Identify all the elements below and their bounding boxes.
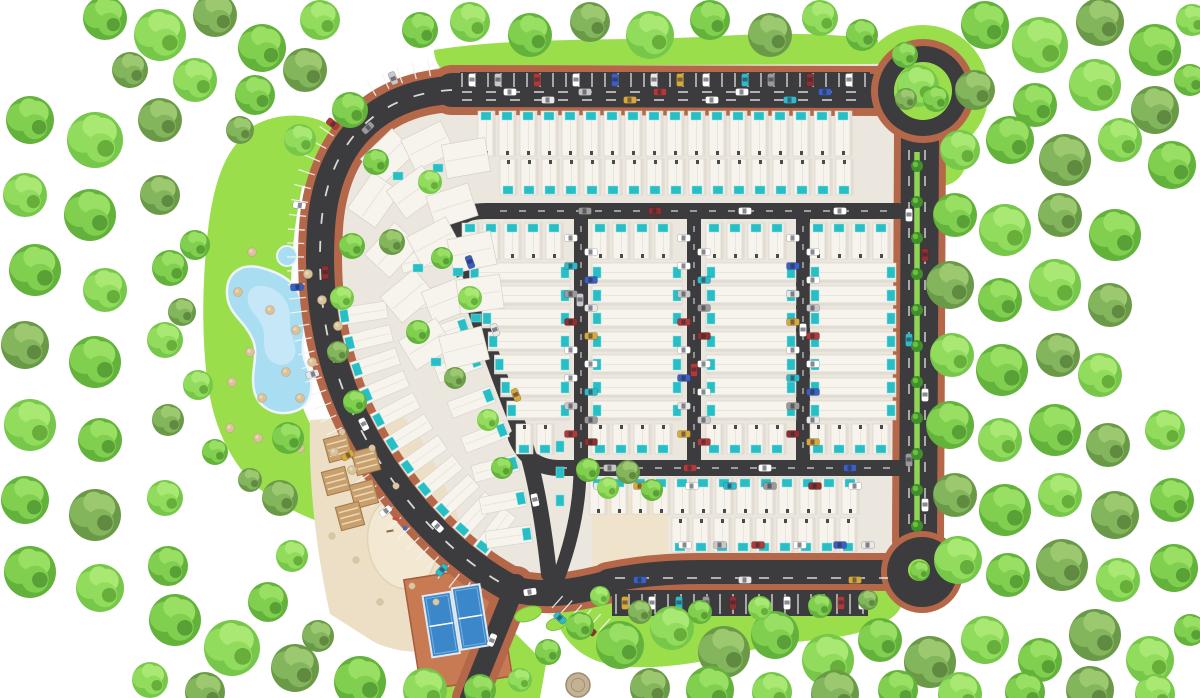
car	[759, 465, 772, 472]
car	[787, 319, 800, 326]
car	[698, 305, 711, 312]
tree	[895, 88, 917, 110]
car	[678, 375, 691, 382]
tree	[930, 333, 974, 377]
tree	[3, 173, 47, 217]
tree	[978, 418, 1022, 462]
car	[703, 74, 710, 87]
tree	[406, 320, 430, 344]
car	[784, 597, 791, 610]
tree	[1036, 539, 1088, 591]
car	[922, 249, 929, 262]
tree	[78, 418, 122, 462]
car	[565, 431, 578, 438]
tree	[576, 458, 600, 482]
car	[585, 417, 598, 424]
tree	[1148, 141, 1196, 189]
car	[794, 542, 807, 549]
tree	[1038, 473, 1082, 517]
car	[604, 465, 617, 472]
tree	[69, 489, 121, 541]
tree	[173, 58, 217, 102]
car	[807, 361, 820, 368]
tree	[112, 52, 148, 88]
car	[787, 403, 800, 410]
car	[585, 305, 598, 312]
car	[579, 89, 592, 96]
tree	[1029, 404, 1081, 456]
tree	[1069, 609, 1121, 661]
car	[787, 375, 800, 382]
tree	[1086, 423, 1130, 467]
tree	[271, 644, 319, 692]
car	[807, 305, 820, 312]
car	[585, 439, 598, 446]
car	[678, 291, 691, 298]
tree	[978, 278, 1022, 322]
tree	[1131, 86, 1179, 134]
car	[649, 208, 662, 215]
car	[634, 577, 647, 584]
car	[809, 483, 822, 490]
car	[752, 542, 765, 549]
tree	[4, 399, 56, 451]
tree	[444, 367, 466, 389]
car	[800, 324, 807, 337]
car	[787, 291, 800, 298]
tree	[933, 473, 977, 517]
car	[906, 209, 913, 222]
car	[624, 97, 637, 104]
tree	[1096, 558, 1140, 602]
car	[698, 277, 711, 284]
car	[322, 266, 329, 279]
car	[565, 263, 578, 270]
tree	[134, 9, 186, 61]
car	[724, 483, 737, 490]
tree	[140, 175, 180, 215]
car	[787, 263, 800, 270]
car	[706, 97, 719, 104]
car	[742, 74, 749, 87]
car	[698, 333, 711, 340]
car	[730, 597, 737, 610]
tree	[238, 24, 286, 72]
tree	[339, 233, 365, 259]
padel-courts	[422, 584, 489, 657]
car	[585, 389, 598, 396]
car	[678, 403, 691, 410]
car	[739, 208, 752, 215]
tree	[748, 596, 772, 620]
tree	[1145, 410, 1185, 450]
car	[698, 439, 711, 446]
site-plan	[0, 0, 1200, 698]
car	[807, 389, 820, 396]
car	[698, 389, 711, 396]
tree	[402, 12, 438, 48]
tree	[616, 460, 640, 484]
car	[290, 283, 303, 291]
tree	[183, 370, 213, 400]
car	[542, 97, 555, 104]
tree	[535, 639, 561, 665]
tree	[808, 594, 832, 618]
car	[684, 465, 697, 472]
tree	[979, 204, 1031, 256]
car	[686, 483, 699, 490]
tree	[858, 618, 902, 662]
car	[787, 235, 800, 242]
tree	[300, 0, 340, 40]
car	[862, 542, 875, 549]
car	[739, 577, 752, 584]
tree	[1036, 333, 1080, 377]
tree	[343, 390, 367, 414]
car	[523, 588, 537, 597]
tree	[138, 98, 182, 142]
tree	[979, 484, 1031, 536]
tree	[1078, 353, 1122, 397]
house-row	[500, 159, 853, 195]
tree	[933, 193, 977, 237]
tree	[508, 668, 532, 692]
tree	[332, 92, 368, 128]
tree	[626, 11, 674, 59]
car	[585, 249, 598, 256]
car	[819, 89, 832, 96]
car	[834, 542, 847, 549]
car	[679, 542, 692, 549]
car	[495, 74, 502, 87]
tree	[9, 244, 61, 296]
house-block	[810, 263, 896, 420]
tree	[226, 116, 254, 144]
tree	[148, 546, 188, 586]
car	[577, 294, 584, 307]
tree	[132, 662, 168, 698]
tree	[202, 439, 228, 465]
car	[565, 319, 578, 326]
car	[807, 74, 814, 87]
tree	[802, 0, 838, 36]
tree	[180, 230, 210, 260]
tree	[961, 616, 1009, 664]
tree	[379, 229, 405, 255]
tree	[986, 116, 1034, 164]
car	[736, 89, 749, 96]
tree	[147, 480, 183, 516]
car	[565, 235, 578, 242]
tree	[330, 286, 354, 310]
car	[678, 347, 691, 354]
tree	[1076, 0, 1124, 46]
tree	[235, 75, 275, 115]
tree	[262, 480, 298, 516]
tree	[284, 124, 316, 156]
car	[807, 439, 820, 446]
tree	[1088, 283, 1132, 327]
house-block	[592, 263, 682, 420]
car	[922, 389, 929, 402]
car	[787, 347, 800, 354]
car	[807, 249, 820, 256]
tree	[248, 582, 288, 622]
car	[849, 483, 862, 490]
tree	[69, 336, 121, 388]
tree	[238, 468, 262, 492]
car	[565, 347, 578, 354]
tree	[67, 112, 123, 168]
car	[469, 74, 476, 87]
tree	[1098, 118, 1142, 162]
tree	[204, 620, 260, 676]
car	[585, 277, 598, 284]
tree	[64, 189, 116, 241]
tree	[1, 321, 49, 369]
car	[565, 375, 578, 382]
tree	[477, 409, 499, 431]
tree	[641, 479, 663, 501]
tree	[76, 564, 124, 612]
car	[698, 417, 711, 424]
car	[579, 208, 592, 215]
tree	[892, 42, 918, 68]
car	[834, 208, 847, 215]
car	[573, 74, 580, 87]
tree	[590, 586, 610, 606]
tree	[597, 477, 619, 499]
tree	[272, 422, 304, 454]
car	[651, 74, 658, 87]
tree	[1038, 193, 1082, 237]
car	[807, 417, 820, 424]
car	[714, 542, 727, 549]
tree	[302, 620, 334, 652]
car	[838, 597, 845, 610]
car	[764, 483, 777, 490]
tree	[570, 2, 610, 42]
tree	[450, 2, 490, 42]
tree	[858, 590, 878, 610]
site-plan-svg	[0, 0, 1200, 698]
car	[846, 74, 853, 87]
car	[698, 249, 711, 256]
tree	[934, 536, 982, 584]
car	[612, 74, 619, 87]
tree	[1089, 209, 1141, 261]
tree	[1150, 544, 1198, 592]
car	[768, 74, 775, 87]
tree	[690, 0, 730, 40]
car	[787, 431, 800, 438]
tree	[458, 286, 482, 310]
car	[807, 333, 820, 340]
tree	[596, 621, 644, 669]
house-block	[706, 263, 796, 420]
tree	[491, 457, 513, 479]
car	[844, 465, 857, 472]
tree	[431, 247, 453, 269]
tree	[923, 86, 949, 112]
car	[698, 361, 711, 368]
car	[677, 74, 684, 87]
tree	[688, 600, 712, 624]
tree	[961, 1, 1009, 49]
car	[585, 361, 598, 368]
tree	[650, 606, 694, 650]
tree	[508, 13, 552, 57]
car	[678, 235, 691, 242]
tree	[926, 261, 974, 309]
tree	[940, 130, 980, 170]
car	[585, 333, 598, 340]
tree	[4, 546, 56, 598]
tree	[418, 170, 442, 194]
tree	[1039, 134, 1091, 186]
tree	[6, 96, 54, 144]
tree	[955, 70, 995, 110]
tree	[152, 250, 188, 286]
tree	[1150, 478, 1194, 522]
tree	[748, 13, 792, 57]
tree	[283, 48, 327, 92]
car	[678, 263, 691, 270]
car	[565, 291, 578, 298]
car	[678, 319, 691, 326]
tree	[910, 561, 930, 581]
tree	[147, 322, 183, 358]
tree	[926, 401, 974, 449]
car	[691, 364, 698, 377]
tree	[1012, 17, 1068, 73]
tree	[846, 19, 878, 51]
car	[807, 277, 820, 284]
tree	[976, 344, 1028, 396]
tree	[83, 268, 127, 312]
tree	[152, 404, 184, 436]
tree	[1069, 59, 1121, 111]
car	[922, 499, 929, 512]
car	[504, 89, 517, 96]
tree	[168, 298, 196, 326]
tree	[276, 540, 308, 572]
tree	[327, 341, 349, 363]
tree	[628, 600, 652, 624]
car	[534, 74, 541, 87]
car	[565, 403, 578, 410]
car	[654, 89, 667, 96]
tree	[363, 149, 389, 175]
tree	[1129, 24, 1181, 76]
tree	[986, 553, 1030, 597]
car	[849, 577, 862, 584]
tree	[1029, 259, 1081, 311]
car	[622, 597, 629, 610]
tree	[1, 476, 49, 524]
tree	[1091, 491, 1139, 539]
tree	[149, 594, 201, 646]
tree	[566, 612, 594, 640]
car	[784, 97, 797, 104]
car	[678, 431, 691, 438]
